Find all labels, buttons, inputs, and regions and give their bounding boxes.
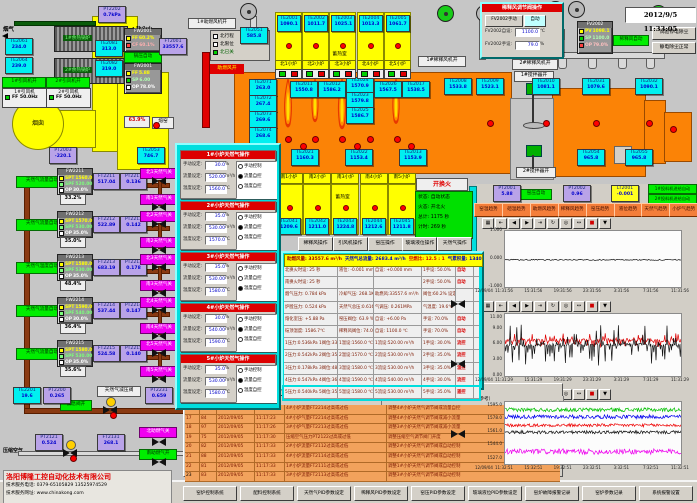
alarm-time: 11:17:23 [255,415,285,424]
trend-button-5[interactable]: 液位趋势 [614,203,643,217]
instrument-tag-value: 1212.6 [363,225,385,231]
fv2002-manual-button[interactable]: FV2002手动 [485,15,523,27]
trend0-stop-icon-button[interactable]: ■ [586,218,598,229]
red-dot-indicator [340,43,346,49]
instrument-tag: TE20211160.3 [291,149,319,166]
ops-button-0[interactable]: 稀释风操作 [298,237,333,251]
furnace-gas-panel: 2#小炉天然气操作手动设定:35.0%流量设定:530.00m³/h温度设定:1… [180,201,276,250]
process-cell: 3流设:530.00 m³/h [374,363,422,374]
company-web[interactable]: 技术服务网址: www.chinakong.com [6,490,169,498]
process-cell: 自动 [456,314,474,325]
trend-xtick: 15:31:29 [519,377,547,382]
instrument-tag-value: 268.1 [98,441,124,447]
radio-label: 温度自控 [244,337,262,342]
row-label: SPT [65,219,74,224]
row-value: 30.0% [73,317,88,322]
row-value: 1098.1 [593,29,610,34]
alarm-date: 2012/09/05 [217,424,255,433]
instrument-tag-value: 0.136 [121,180,146,186]
process-cell: 5压力:0.540kPa 5阀位:35.6% [284,387,338,398]
field-input[interactable]: 35.0 [205,212,227,221]
radio-option[interactable]: 流量自控 [238,275,275,285]
bottom-button-2[interactable]: 天然气PID参数设定 [297,486,351,501]
field-input[interactable]: 530.00 [205,275,227,284]
run-indicator [49,95,54,100]
trend-ytick: 6.00 [480,340,502,345]
field-label: 手动设定: [183,365,207,373]
trend2-stop-icon-button[interactable]: ■ [586,389,598,400]
instrument-tag-value: 0.7kPa [99,13,125,19]
radio-icon[interactable] [238,337,243,342]
instrument-tag-value: 1013.3 [360,22,382,28]
radio-option[interactable]: 流量自控 [238,377,275,387]
radio-icon[interactable] [238,164,243,169]
south-gas-valve-icon[interactable] [451,360,465,368]
trend0-last-icon-button[interactable]: ⇥ [534,218,546,229]
trend-xtick: 11:31:29 [666,377,694,382]
trend-xtick: 3:31:56 [607,288,635,293]
burner-indicator-box[interactable] [384,69,411,79]
limit-north-closed: 北已关 [220,49,234,55]
instrument-tag-value: 1153.4 [346,156,372,162]
radio-option[interactable]: 流量自控 [238,326,275,336]
bottom-button-5[interactable]: 玻璃液位PID参数设定 [468,486,522,501]
regenerator-label: 蓄热室 [332,50,346,57]
radio-option[interactable]: 手动控制 [238,163,275,173]
trend1-refresh-icon-button[interactable]: ↻ [547,301,559,312]
alarm-point: 1#小炉流量FT2111过高或过低 [285,463,387,472]
field-input[interactable]: 520.00 [205,173,227,182]
gas-south-valve-icon[interactable] [152,246,166,254]
red-dot-indicator [300,143,307,150]
south-gas-valve-icon[interactable] [451,430,465,438]
instrument-tag-value: 0.659 [146,394,172,400]
instrument-tag-value: 585.8 [241,34,267,40]
trend-xtick: 3:32:51 [607,465,635,470]
gas-north-valve-icon[interactable] [152,349,166,357]
process-cell: 1流设:520.00 m³/h [374,338,422,349]
burner-on-indicator [279,71,286,77]
field-label: 温度设定: [183,287,207,295]
fan2-ff: FF 50.0Hz [56,95,82,100]
regenerator-chamber-south: TE20451211.8 [388,184,416,235]
trend2-save-icon-button[interactable]: ▼ [599,389,611,400]
fan2-status: 2#引风机开 [46,77,90,88]
furnace-gas-panel-title: 4#小炉天然气操作 [181,304,275,312]
instrument-tag-value: 269.6 [250,118,276,124]
trend0-prev-icon-button[interactable]: ◀ [508,218,520,229]
row-value: 5.88 [139,71,150,76]
radio-option[interactable]: 温度自控 [238,234,275,244]
red-dot-indicator [286,43,292,49]
process-cell: 自动 [456,326,474,337]
company-tel: 技术服务电话: 0379-65105829 13525974529 [6,482,169,490]
red-dot-indicator [315,205,321,211]
gas-north-valve-icon[interactable] [152,177,166,185]
process-cell: 2流设:530.00 m³/h [374,350,422,361]
radio-icon[interactable] [238,215,243,220]
fan-hub-icon [444,12,448,16]
red-dot-indicator [408,143,415,150]
instrument-tag: TE2081313.0 [95,40,123,57]
instrument-tag: PT22020.7kPa [98,6,126,23]
field-label: 手动设定: [183,161,207,169]
instrument-tag-value: 0.140 [121,352,146,358]
instrument-tag: TE2053746.7 [137,147,165,164]
instrument-tag-value: 1081.1 [533,85,559,91]
process-cell: 1手设: 30.0% [422,338,456,349]
radio-option[interactable]: 温度自控 [238,285,275,295]
south-furnace-name: 南5小炉 [393,175,410,180]
alarm-point: 压缩空气压力PT2122过高或过低 [285,434,387,443]
process-cell: 炉膛压力: 0.524 kPa [284,302,338,313]
trend-button-2[interactable]: 助燃风趋势 [530,203,559,217]
trend1-save-icon-button[interactable]: ▼ [599,301,611,312]
radio-icon[interactable] [238,378,243,383]
radio-option[interactable]: 手动控制 [238,265,275,275]
air-south-valve-icon[interactable] [152,458,166,466]
fan-hub-icon [575,8,579,12]
valve-actuator-icon[interactable] [106,397,116,407]
gas-south-valve-icon[interactable] [152,332,166,340]
trend-chart-2 [504,401,682,465]
bottom-button-8[interactable]: 系统报警设置 [639,486,693,501]
trend-xtick: 23:32:51 [578,465,606,470]
valve-actuator-icon[interactable] [66,440,76,450]
row-value: 1590.0 [75,305,92,310]
radio-icon[interactable] [238,276,243,281]
trend-series-窑压 [505,325,681,366]
red-dot-indicator [670,126,677,133]
process-row: 1压力:0.536kPa 1阀位:33.2%1温设:1560.0 ℃1流设:52… [284,338,479,350]
process-cell: 5流设:530.00 m³/h [374,387,422,398]
instrument-tag-value: 965.8 [626,156,652,162]
radio-icon[interactable] [238,266,243,271]
trend-plot [505,402,681,464]
bottom-button-4[interactable]: 窑压PID参数设定 [411,486,465,501]
esp-normal-button[interactable]: 静电除尘正常 [652,42,696,54]
radio-label: 手动控制 [244,317,262,322]
radio-option[interactable]: 温度自控 [238,183,275,193]
alarm-point: 4#小炉流量FT2214过高或过低 [285,405,387,414]
ops-button-4[interactable]: 天然气操作 [437,237,472,251]
instrument-tag-value: 239.0 [6,64,32,70]
gas-controller[interactable]: FW2214SPT1590.0SPF540.00OP30.0% [57,297,93,324]
bottom-button-6[interactable]: 窑炉故障报警记录 [525,486,579,501]
radio-icon[interactable] [238,317,243,322]
alarm-time: 11:17:33 [255,472,285,481]
trend-toolbar: ▦⇤◀▶⇥↻◎↔■▼ [482,301,622,311]
field-input[interactable]: 1590.0 [205,338,227,347]
row-label: PV [585,29,592,34]
trend-chart-1 [504,313,682,377]
burner-indicator-box[interactable] [357,69,384,79]
instrument-tag: TE20021011.7 [304,15,328,32]
radio-icon[interactable] [238,388,243,393]
ops-button-1[interactable]: 引风机操作 [333,237,368,251]
trend-button-7[interactable]: 小炉气趋势 [669,203,697,217]
process-cell: 稀释风阀位: 74.0 % [338,326,374,337]
boiler-2-label: 2#余热锅炉 [63,67,92,73]
trend1-next-icon-button[interactable]: ▶ [521,301,533,312]
limit-north-travel: 北行程 [220,33,234,39]
gas-north-valve-icon[interactable] [152,306,166,314]
air-fuel-ratio: 空燃比: 12.5 : 1 [409,255,445,266]
process-cell: 4流设:540.00 m³/h [374,375,422,386]
process-row: 4压力:0.547kPa 4阀位:36.4%4温设:1590.0 ℃4流设:54… [284,375,479,387]
trend0-next-icon-button[interactable]: ▶ [521,218,533,229]
instrument-tag: PT21210.524 [35,434,63,451]
trend1-prev-icon-button[interactable]: ◀ [508,301,520,312]
manifold-drop [618,58,627,69]
radio-option[interactable]: 温度自控 [238,387,275,397]
trend0-save-icon-button[interactable]: ▼ [599,218,611,229]
radio-label: 温度自控 [244,388,262,393]
field-unit: % [225,212,234,220]
radio-option[interactable]: 温度自控 [238,336,275,346]
south-furnace-label: 南2小炉 [303,173,331,184]
trend-plot [505,314,681,376]
process-cell [374,277,422,288]
burner-indicator-box[interactable] [302,69,329,79]
gas-north-valve-icon[interactable] [152,220,166,228]
fw2001-top-controller[interactable]: FW2001 FF60.2% CF60.1% [124,28,162,52]
bottom-button-0[interactable]: 窑炉控制系统 [183,486,237,501]
instrument-tag-value: 268.6 [250,134,276,140]
gas-south-valve-icon[interactable] [152,375,166,383]
instrument-tag-value: 1153.9 [400,156,426,162]
row-value: 35.0% [73,360,88,365]
fv2002-sp-input[interactable]: 1100.0 [515,28,540,37]
alarm-point: 4#小炉流量FT2114过高或过低 [285,453,387,462]
instrument-tag: TE20321090.1 [635,78,663,95]
instrument-tag-value: 1079.6 [583,85,609,91]
trend1-last-icon-button[interactable]: ⇥ [534,301,546,312]
manifold-drop [558,58,567,69]
field-input[interactable]: 530.00 [205,224,227,233]
radio-option[interactable]: 流量自控 [238,173,275,183]
control-mode-radio-group: 手动控制流量自控温度自控 [236,212,277,250]
trend-xtick: 15:31:56 [519,288,547,293]
fv2002-controller[interactable]: FV2002 PV1098.1 SP1100.0 OP79.0% [577,21,613,54]
field-label: 流量设定: [183,275,207,283]
radio-icon[interactable] [238,286,243,291]
trend1-stop-icon-button[interactable]: ■ [586,301,598,312]
instrument-tag: PT20015.88 [493,185,521,202]
trend0-pan-icon-button[interactable]: ↔ [573,218,585,229]
flue-gas-label: 烟气 [3,25,14,33]
trend2-pan-icon-button[interactable]: ↔ [573,389,585,400]
field-label: 流量设定: [183,377,207,385]
row-value: 520.00 [75,182,92,187]
radio-icon[interactable] [238,225,243,230]
burner-indicator-box[interactable] [329,69,356,79]
field-input[interactable]: 540.00 [205,326,227,335]
fire-direction: 火态: 开北火 [418,203,470,213]
trend-button-4[interactable]: 窑压趋势 [586,203,615,217]
trend1-first-icon-button[interactable]: ⇤ [495,301,507,312]
instrument-tag-value: 1211.8 [391,225,413,231]
row-label: SPF [65,182,74,187]
instrument-tag-value: 1090.1 [278,22,300,28]
radio-icon[interactable] [238,184,243,189]
instrument-tag-name: TE2042 [306,219,328,225]
alarm-date: 2012/09/05 [217,463,255,472]
instrument-tag: TE20451211.8 [390,218,414,235]
instrument-tag-value: 0.265 [44,394,70,400]
kiln-scada-screen: 烟囱 烟气 软化水 1#余热锅炉 2#余热锅炉 1#引风机开 2#引风机开 1#… [0,0,697,503]
radio-icon[interactable] [238,368,243,373]
red-dot-indicator [368,43,374,49]
alarm-row[interactable]: 23832012/09/0511:17:333#小炉流量FT2113过高或过低调… [185,472,560,482]
trend-button-1[interactable]: 碹温趋势 [502,203,531,217]
process-rows: 北换火时设: 25 秒液位: -0.001 mm自设: +0.000 mm1手设… [284,265,479,399]
gas-north-valve-icon[interactable] [152,263,166,271]
trend-xtick: 19:32:51 [549,465,577,470]
radio-icon[interactable] [238,235,243,240]
trend1-pan-icon-button[interactable]: ↔ [573,301,585,312]
field-input[interactable]: 35.0 [205,263,227,272]
field-unit: % [225,314,234,322]
stirrer-2-shaft [532,155,534,169]
instrument-tag-name: TE2044 [363,219,385,225]
instrument-tag: TE20431224.8 [333,218,357,235]
boiler-pressure-auto: 锅压自动 [124,52,162,63]
alarm-time: 11:17:30 [255,434,285,443]
row-label: SPF [65,225,74,230]
trend1-zoom-icon-button[interactable]: ◎ [560,301,572,312]
radio-icon[interactable] [238,174,243,179]
row-label: SPF [65,354,74,359]
summary-bar: 助燃风量: 33557.6 m³/h 天然气总流量: 2683.4 m³/h 空… [284,254,483,267]
field-label: 流量设定: [183,326,207,334]
burner-off-indicator [318,71,325,77]
row-label: FF [132,36,138,41]
burner-indicator-box[interactable] [275,69,302,79]
trend-xtick: 7:31:29 [637,377,665,382]
gas-south-valve-icon[interactable] [152,289,166,297]
fv2002-auto-button[interactable]: 自动 [524,15,546,27]
fw2001-mid-controller[interactable]: FW2001 FF5.88 SP6.00 OP78.0% [124,63,162,94]
regenerator-chamber-north: TE20041013.3 [357,12,384,61]
control-mode-radio-group: 手动控制流量自控温度自控 [236,365,277,403]
bottom-button-3[interactable]: 稀释风PID参数设定 [354,486,408,501]
burner-on-indicator [333,71,340,77]
trend-button-3[interactable]: 稀释风趋势 [558,203,587,217]
north-furnace-name: 北2小炉 [307,62,324,67]
instrument-tag: TE20311079.6 [582,78,610,95]
row-value: 79.0% [593,43,608,48]
gas-controller[interactable]: FW2211SPT1560.0SPF520.00OP30.0% [57,168,93,195]
field-unit: ℃ [225,338,234,346]
process-cell: 南换火时设: 25 秒 [284,277,338,288]
trend0-zoom-icon-button[interactable]: ◎ [560,218,572,229]
radio-label: 手动控制 [244,164,262,169]
trend-ytick: 1578.0 [480,415,502,420]
trend-button-6[interactable]: 天然气趋势 [641,203,670,217]
process-row: 3压力:0.178kPa 3阀位:48.4%3温设:1580.0 ℃3流设:53… [284,363,479,375]
field-input[interactable]: 1580.0 [205,287,227,296]
alarm-seq: 20 [185,443,200,452]
radio-label: 手动控制 [244,266,262,271]
red-dot-indicator [395,43,401,49]
field-input[interactable]: 530.00 [205,377,227,386]
row-value: 30.0% [73,188,88,193]
alarm-point: 2#小炉流量FT2112过高或过低 [285,443,387,452]
ops-button-2[interactable]: 窑压操作 [368,237,403,251]
gas-controller[interactable]: FW2212SPT1570.0SPF530.00OP35.0% [57,211,93,238]
trend-ytick: 0.000 [480,255,502,260]
radio-option[interactable]: 手动控制 [238,214,275,224]
process-cell: 2压力:0.542kPa 2阀位:35.0% [284,350,338,361]
south-gas-valve-icon[interactable] [451,300,465,308]
instrument-tag: TE220119.6 [13,387,41,404]
trend-ytick: 1544.0 [480,441,502,446]
instrument-tag: TE20091523.1 [476,78,504,95]
process-row: 炉膛压力: 0.524 kPa天然气总压:0.616MPa气调压: 0.261M… [284,302,479,314]
trend-button-0[interactable]: 窑温趋势 [474,203,503,217]
radio-option[interactable]: 手动控制 [238,316,275,326]
south-furnace-name: 南2小炉 [309,175,326,180]
field-input[interactable]: 1580.0 [205,389,227,398]
red-dot-indicator [110,412,117,419]
instrument-tag-value: 5.88 [494,192,520,198]
instrument-tag-value: 0.147 [121,309,146,315]
bottom-button-7[interactable]: 窑炉参数记录 [582,486,636,501]
trend0-refresh-icon-button[interactable]: ↻ [547,218,559,229]
air-north-valve-icon[interactable] [152,438,166,446]
gas-valve-position: 35.6% [60,366,86,377]
ops-button-3[interactable]: 玻璃液位操作 [402,237,437,251]
furnace-gas-popup: 1#小炉天然气操作手动设定:30.0%流量设定:520.00m³/h温度设定:1… [175,143,281,410]
fv2002-man-input[interactable]: 79.0 [515,41,540,50]
red-dot-indicator [343,205,349,211]
radio-option[interactable]: 流量自控 [238,224,275,234]
alarm-time: 11:17:26 [255,424,285,433]
radio-icon[interactable] [238,327,243,332]
gas-controller[interactable]: FW2215SPT1580.0SPF530.00OP35.0% [57,340,93,367]
red-dot-indicator [287,205,293,211]
field-label: 手动设定: [183,212,207,220]
instrument-tag-value: 1090.1 [636,85,662,91]
bottom-button-1[interactable]: 配料控制系统 [240,486,294,501]
gas-south-valve-icon[interactable] [152,203,166,211]
radio-label: 温度自控 [244,184,262,189]
row-label: OP [132,85,139,90]
gas-accumulated: 气累积量: 134057.7m³ [448,255,483,266]
red-dot-indicator [646,120,653,127]
field-input[interactable]: 1560.0 [205,185,227,194]
change-fire-button[interactable]: 开换火 [416,178,468,191]
row-label: SP [132,78,138,83]
field-input[interactable]: 30.0 [205,314,227,323]
alarm-date: 2012/09/05 [217,453,255,462]
burner-on-indicator [361,71,368,77]
field-input[interactable]: 1570.0 [205,236,227,245]
field-unit: m³/h [225,173,234,181]
row-label: SPF [65,311,74,316]
regenerator-chamber-south: TE20421211.0 [303,184,331,235]
furnace-end [664,112,692,162]
datetime: 2012/9/5 11:33:05 [644,11,677,33]
fire-timer: 计时: 269 秒 [418,223,470,233]
radio-label: 流量自控 [244,225,262,230]
process-cell: 自动 [456,277,474,288]
radio-option[interactable]: 手动控制 [238,367,275,377]
gas-controller[interactable]: FW2213SPT1580.0SPF530.00OP35.0% [57,254,93,281]
field-input[interactable]: 30.0 [205,161,227,170]
field-input[interactable]: 35.0 [205,365,227,374]
